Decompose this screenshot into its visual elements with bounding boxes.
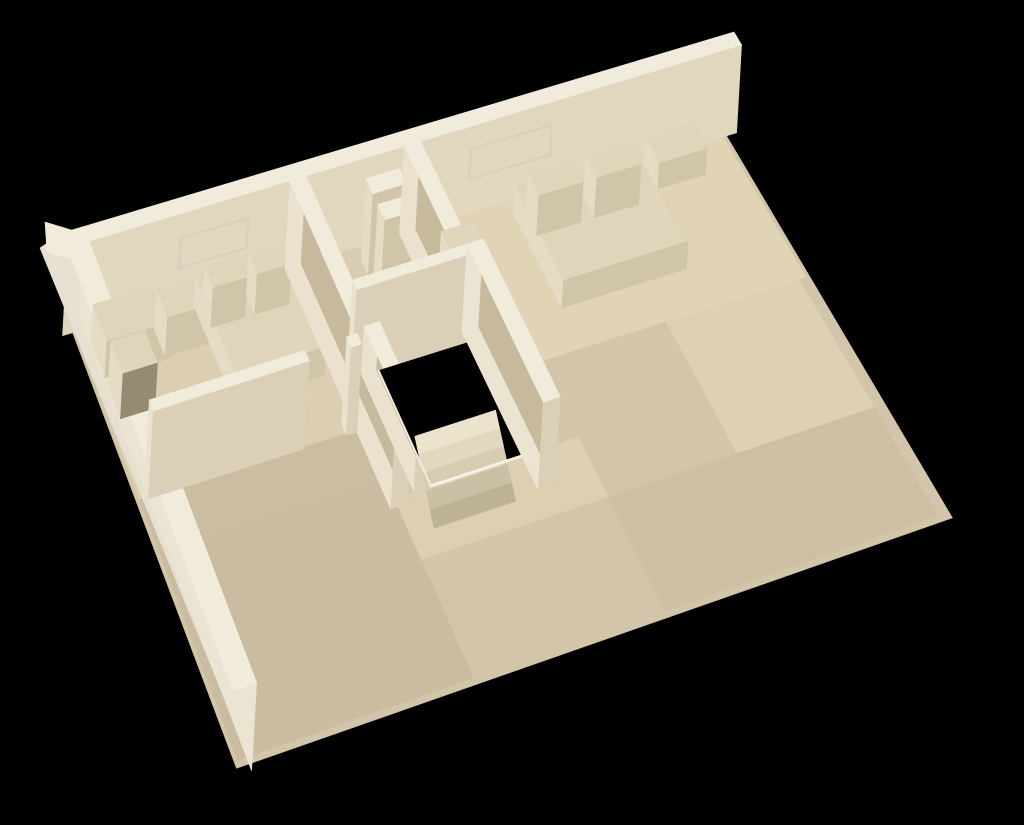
photo-stage: Photograph of a cream 3D-printed archite…: [0, 0, 1024, 825]
house-model-photo: [0, 0, 1024, 825]
model-scene: [40, 32, 952, 771]
